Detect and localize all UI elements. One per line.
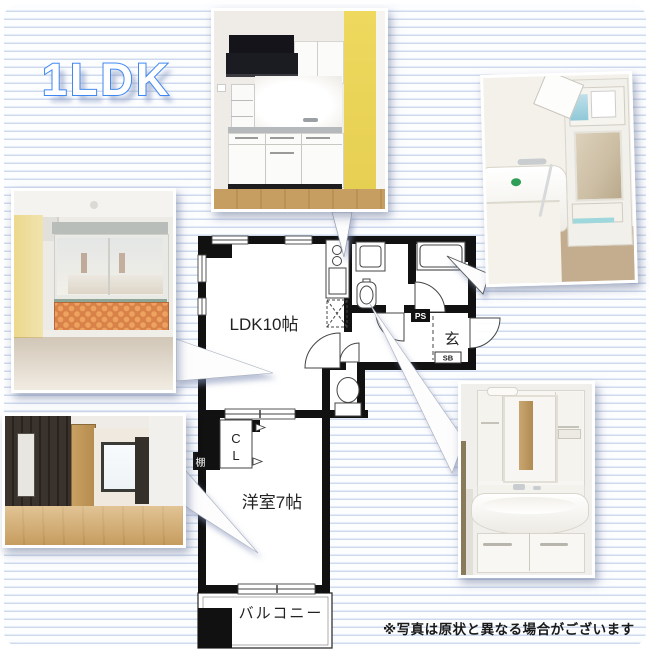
window-building — [119, 253, 125, 273]
kitchen-yellow-wall — [344, 11, 376, 195]
shelf-line — [231, 100, 253, 101]
photo-kitchen — [211, 8, 388, 212]
photo-bathroom — [480, 71, 638, 287]
vanity-side-shelf-left — [478, 392, 503, 482]
window-building — [81, 253, 87, 273]
vanity-handle — [533, 486, 541, 490]
floor-gloss — [5, 506, 183, 545]
window-skyline — [68, 275, 163, 295]
wall-outlet — [217, 84, 226, 92]
mirror-reflection-door — [519, 401, 533, 470]
kitchen-right-wall — [376, 11, 385, 209]
hall-wood-door — [71, 424, 96, 510]
range-hood — [226, 53, 298, 78]
hall-dark-band — [135, 437, 149, 504]
cabinet-handle — [540, 543, 569, 547]
vanity-faucet — [513, 484, 525, 490]
kitchen-floor — [214, 189, 385, 209]
kitchen-base-cabinet — [228, 133, 345, 188]
shelf-line — [481, 422, 499, 424]
shelf-line — [231, 116, 253, 117]
vanity-lower-cabinet — [477, 533, 585, 573]
drawer-handle — [270, 152, 294, 155]
bathroom-leader — [447, 256, 489, 294]
living-leader — [176, 339, 273, 381]
cabinet-seam — [301, 134, 302, 185]
window-sash — [108, 238, 110, 296]
photo-disclaimer-note: ※写真は原状と異なる場合がございます — [383, 618, 635, 638]
drawer-handle — [235, 137, 259, 140]
shelf-item — [558, 429, 581, 439]
listing-image: 1LDK 1LDK — [0, 0, 650, 650]
kitchen-leader — [332, 212, 352, 257]
hall-dark-wall — [5, 416, 71, 517]
room-leader — [185, 470, 258, 553]
floor-sheen — [14, 337, 173, 390]
vanity-light — [487, 387, 518, 397]
bath-faucet — [518, 159, 547, 165]
hall-white-frame — [17, 433, 35, 497]
bath-label-card — [590, 91, 616, 118]
drawer-line — [228, 144, 343, 145]
cabinet-handle — [483, 543, 512, 547]
bath-mirror — [574, 130, 624, 201]
kitchen-faucet — [303, 118, 318, 122]
drawer-handle — [270, 137, 294, 140]
photo-hallway — [2, 413, 186, 548]
drawer-handle — [306, 137, 330, 140]
cabinet-seam — [265, 134, 266, 185]
range-hood-top — [229, 35, 294, 55]
basin-inner — [482, 497, 576, 514]
cabinet-seam — [529, 533, 530, 571]
bathtub-front — [481, 200, 562, 287]
photo-washbasin — [458, 381, 595, 578]
washbasin-leader — [370, 304, 464, 473]
living-yellow-wall — [14, 215, 43, 338]
orange-panel — [54, 302, 169, 332]
photo-living — [11, 188, 176, 393]
kitchen-backsplash — [255, 76, 342, 127]
window-header — [52, 222, 168, 234]
